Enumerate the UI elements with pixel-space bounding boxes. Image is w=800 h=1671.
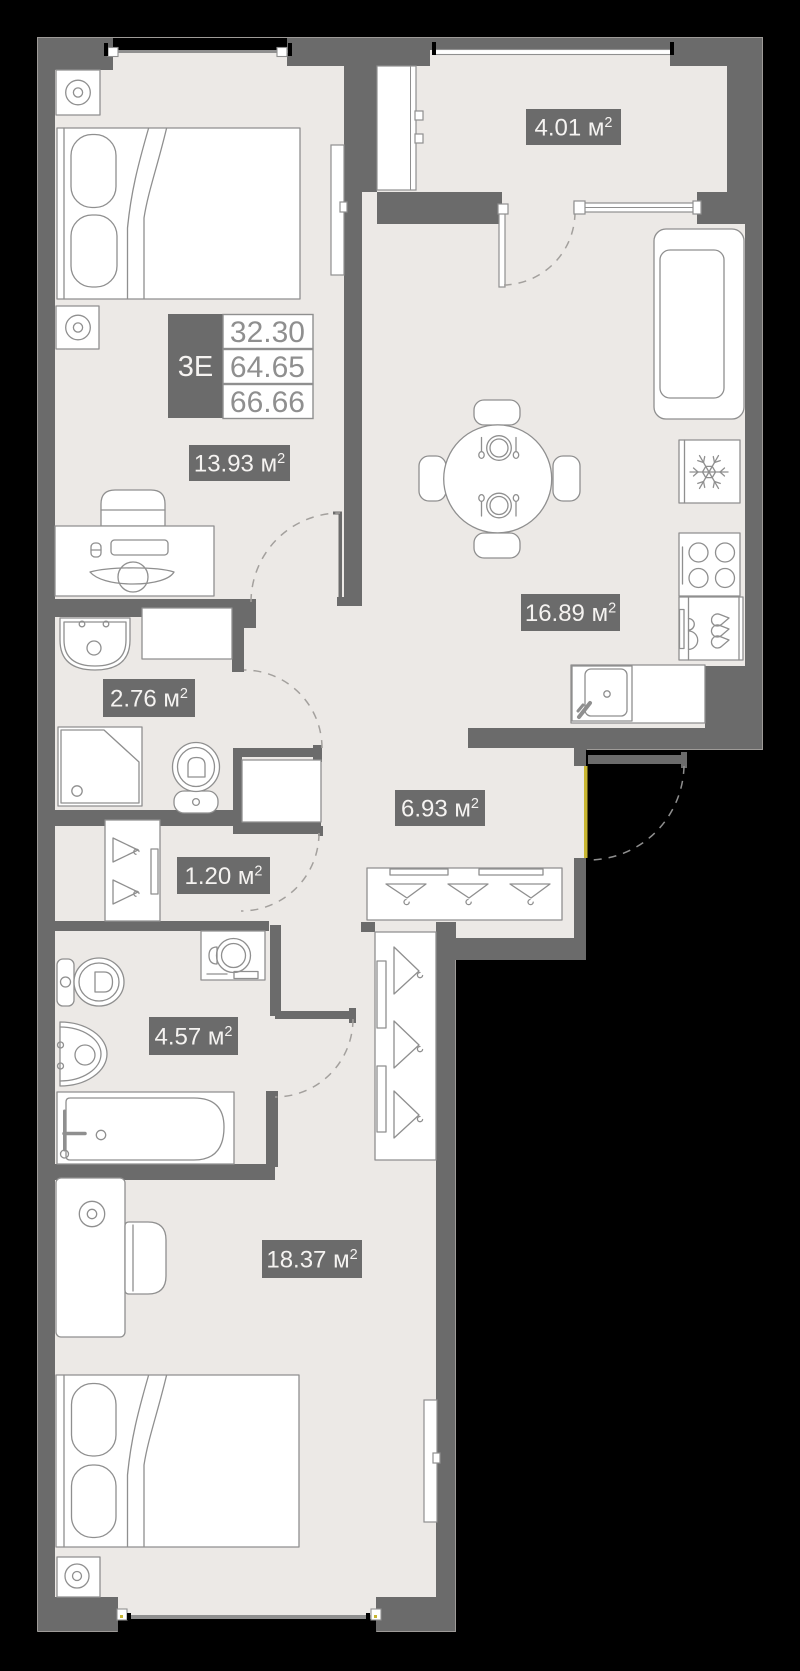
svg-text:64.65: 64.65: [230, 351, 305, 384]
svg-text:2.76 м2: 2.76 м2: [110, 686, 188, 713]
svg-text:1.20 м2: 1.20 м2: [185, 863, 263, 890]
svg-text:4.57 м2: 4.57 м2: [155, 1024, 233, 1051]
svg-text:66.66: 66.66: [230, 386, 305, 419]
svg-text:16.89 м2: 16.89 м2: [525, 600, 616, 627]
svg-text:4.01 м2: 4.01 м2: [535, 115, 613, 142]
svg-text:18.37 м2: 18.37 м2: [266, 1247, 357, 1274]
svg-text:6.93 м2: 6.93 м2: [401, 796, 479, 823]
svg-text:32.30: 32.30: [230, 316, 305, 349]
svg-text:3E: 3E: [178, 351, 213, 383]
svg-text:13.93 м2: 13.93 м2: [194, 451, 285, 478]
